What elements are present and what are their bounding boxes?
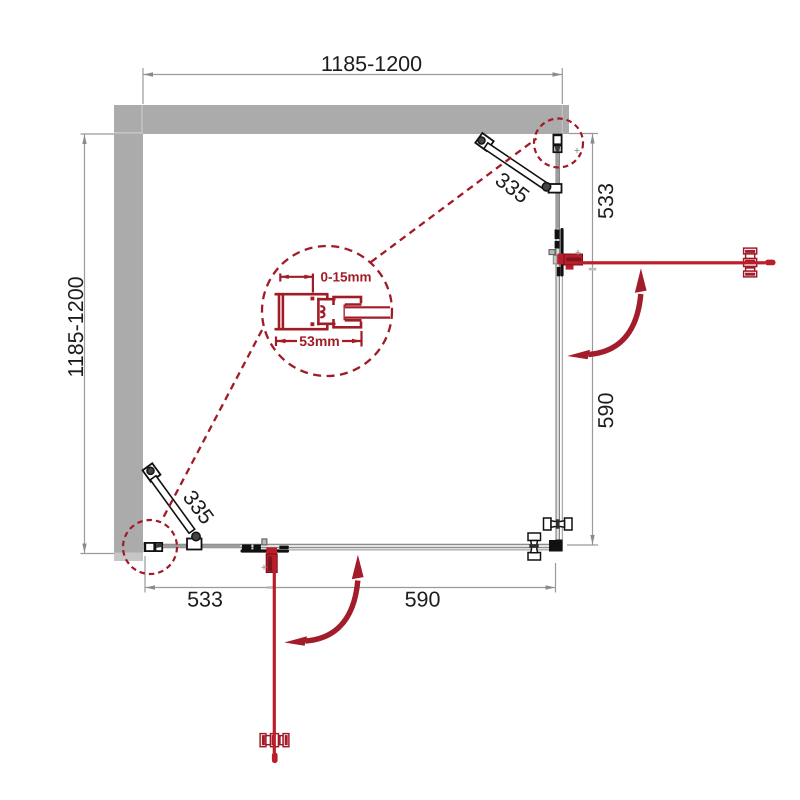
svg-text:1185-1200: 1185-1200 <box>64 276 88 377</box>
svg-text:1185-1200: 1185-1200 <box>321 52 422 76</box>
svg-text:53mm: 53mm <box>299 333 339 349</box>
svg-text:0-15mm: 0-15mm <box>321 270 372 285</box>
svg-text:533: 533 <box>594 183 618 219</box>
svg-text:533: 533 <box>187 588 223 612</box>
svg-text:590: 590 <box>594 393 618 429</box>
svg-text:590: 590 <box>405 588 441 612</box>
